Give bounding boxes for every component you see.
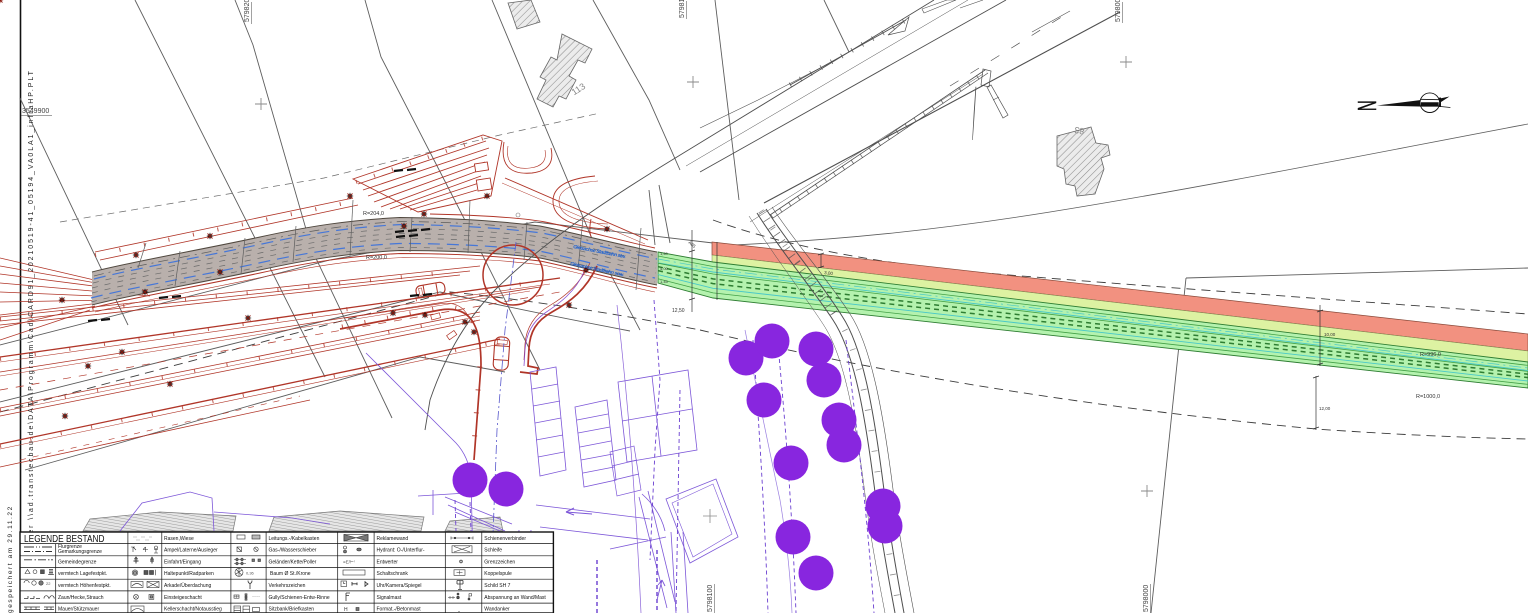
svg-text:22: 22 bbox=[46, 581, 51, 586]
svg-text:Schaltschrank: Schaltschrank bbox=[377, 571, 409, 577]
svg-text:LEGENDE BESTAND: LEGENDE BESTAND bbox=[24, 533, 105, 544]
svg-text:Zaun/Hecke,Strauch: Zaun/Hecke,Strauch bbox=[58, 595, 104, 601]
svg-text:~~~~: ~~~~ bbox=[252, 595, 260, 599]
svg-text:Uhr/Kamera/Spiegel: Uhr/Kamera/Spiegel bbox=[377, 583, 422, 589]
svg-text:Sitzbank/Briefkasten: Sitzbank/Briefkasten bbox=[269, 607, 315, 613]
svg-text:Mauer/Stützmauer: Mauer/Stützmauer bbox=[58, 607, 99, 613]
svg-text:vermtech Lagefestpkt.: vermtech Lagefestpkt. bbox=[58, 571, 107, 577]
svg-text:Grenzzeichen: Grenzzeichen bbox=[484, 560, 515, 566]
svg-text:Gemarkungsgrenze: Gemarkungsgrenze bbox=[58, 549, 102, 555]
svg-text:Schild SH 7: Schild SH 7 bbox=[484, 583, 510, 589]
svg-text:579800: 579800 bbox=[1115, 0, 1122, 22]
svg-text:H: H bbox=[344, 607, 348, 613]
svg-text:1,40: 1,40 bbox=[660, 251, 669, 256]
svg-text:Rasen,Wiese: Rasen,Wiese bbox=[164, 536, 194, 542]
svg-text:Reklamewand: Reklamewand bbox=[377, 536, 409, 542]
svg-text:4,00: 4,00 bbox=[660, 266, 669, 271]
svg-text:Hydrant: O-/Unterflur-: Hydrant: O-/Unterflur- bbox=[377, 548, 425, 554]
svg-text:Kellerschacht/Notausstieg: Kellerschacht/Notausstieg bbox=[164, 607, 222, 613]
svg-text:Abspannung an Wand/Mast: Abspannung an Wand/Mast bbox=[484, 595, 546, 601]
svg-text:Arkade/Überdachung: Arkade/Überdachung bbox=[164, 582, 211, 589]
svg-text:10,00: 10,00 bbox=[1324, 332, 1336, 337]
svg-text:⎵: ⎵ bbox=[458, 608, 460, 613]
svg-text:R=1000,0: R=1000,0 bbox=[1416, 394, 1440, 400]
svg-text:R=204,0: R=204,0 bbox=[363, 211, 384, 217]
svg-text:5798100: 5798100 bbox=[707, 585, 714, 612]
svg-text:1,45: 1,45 bbox=[660, 279, 669, 284]
svg-text:Verkehrszeichen: Verkehrszeichen bbox=[269, 583, 306, 589]
svg-text:0,36: 0,36 bbox=[246, 571, 255, 576]
svg-text:gespeichert am 29.11.22: gespeichert am 29.11.22 bbox=[7, 505, 14, 613]
svg-text:3549900: 3549900 bbox=[22, 108, 49, 115]
svg-text:Signalmast: Signalmast bbox=[377, 595, 402, 601]
svg-text:12,00: 12,00 bbox=[1319, 406, 1331, 411]
svg-text:579820: 579820 bbox=[244, 0, 251, 22]
svg-text:gespeichert unter \\ad.transte: gespeichert unter \\ad.transtecbau.de\DA… bbox=[28, 69, 35, 610]
svg-text:Format.-/Betonmast: Format.-/Betonmast bbox=[377, 607, 422, 613]
svg-text:12,50: 12,50 bbox=[672, 308, 685, 314]
svg-text:5798000: 5798000 bbox=[1143, 585, 1150, 612]
svg-text:Einfahrt/Eingang: Einfahrt/Eingang bbox=[164, 560, 201, 566]
svg-text:Baum Ø St./Krone: Baum Ø St./Krone bbox=[270, 571, 311, 577]
svg-text:vermtech Höhenfestpkt.: vermtech Höhenfestpkt. bbox=[58, 583, 111, 589]
svg-text:≡E/⊢⁽: ≡E/⊢⁽ bbox=[343, 559, 355, 565]
svg-text:Ampel/Laterne/Ausleger: Ampel/Laterne/Ausleger bbox=[164, 548, 218, 554]
svg-text:R=996,0: R=996,0 bbox=[1420, 352, 1441, 358]
svg-text:Gully/Schienen-Entw-Rinne: Gully/Schienen-Entw-Rinne bbox=[269, 595, 330, 601]
svg-text:Einsteigeschacht: Einsteigeschacht bbox=[164, 595, 202, 601]
svg-text:Gemeindegrenze: Gemeindegrenze bbox=[58, 560, 97, 566]
svg-text:579810: 579810 bbox=[679, 0, 686, 18]
svg-text:Schienenverbinder: Schienenverbinder bbox=[484, 536, 526, 542]
svg-text:Gas-/Wasserschieber: Gas-/Wasserschieber bbox=[269, 548, 317, 554]
svg-text:R=200,0: R=200,0 bbox=[366, 255, 387, 261]
svg-text:Schleife: Schleife bbox=[484, 548, 502, 554]
svg-text:83: 83 bbox=[1074, 125, 1086, 137]
svg-text:Geländer/Kette/Poller: Geländer/Kette/Poller bbox=[269, 560, 317, 566]
svg-text:Koppelspule: Koppelspule bbox=[484, 571, 512, 577]
svg-text:Leitungs.-/Kabelkasten: Leitungs.-/Kabelkasten bbox=[269, 536, 320, 542]
svg-text:Wandanker: Wandanker bbox=[484, 607, 510, 613]
svg-text:Haltepunkt/Radparken: Haltepunkt/Radparken bbox=[164, 571, 214, 577]
svg-text:N: N bbox=[1352, 100, 1380, 111]
svg-text:Entwerter: Entwerter bbox=[377, 560, 399, 566]
